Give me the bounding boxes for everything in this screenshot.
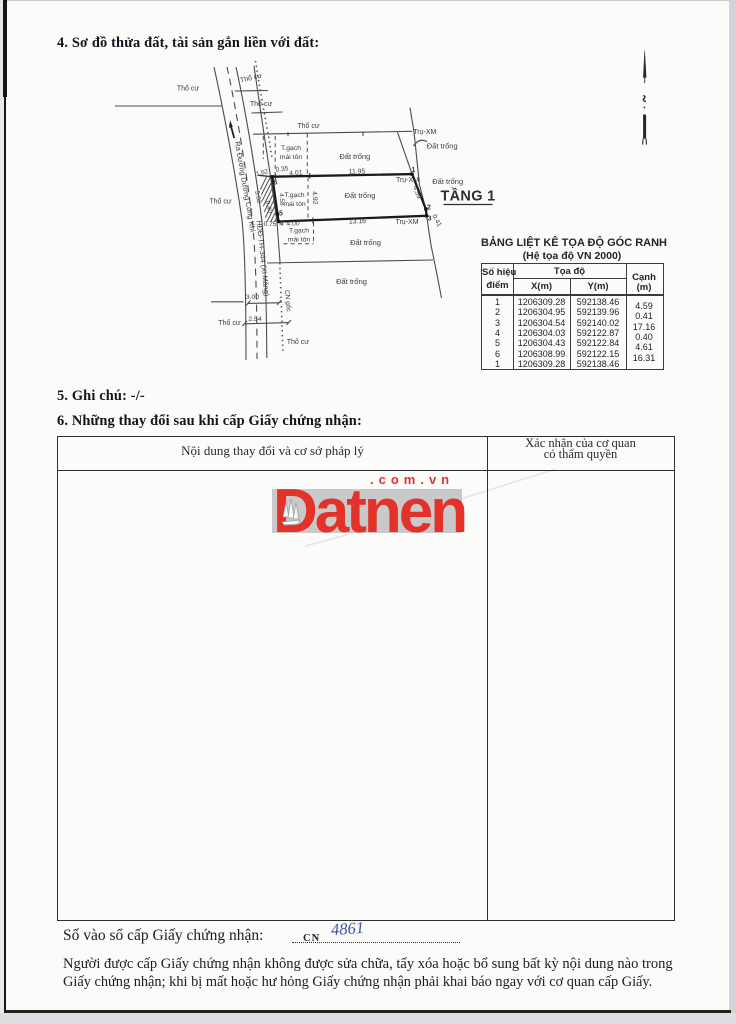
svg-text:T.gạch: T.gạch <box>284 192 304 199</box>
svg-text:0.35: 0.35 <box>275 165 289 174</box>
svg-text:mái tôn: mái tôn <box>283 201 306 208</box>
svg-text:Thổ cư: Thổ cư <box>297 122 320 130</box>
svg-text:5: 5 <box>279 211 283 218</box>
svg-text:2.54: 2.54 <box>248 316 261 323</box>
svg-text:4.00: 4.00 <box>286 221 299 228</box>
svg-text:Thổ cư: Thổ cư <box>287 338 310 346</box>
svg-text:11.95: 11.95 <box>349 168 366 175</box>
svg-text:0.40: 0.40 <box>263 200 273 214</box>
svg-text:4: 4 <box>279 221 283 228</box>
svg-text:Thổ cư: Thổ cư <box>250 100 273 108</box>
svg-text:mái tôn: mái tôn <box>280 154 303 161</box>
svg-text:5.02: 5.02 <box>253 190 262 204</box>
svg-text:0.75: 0.75 <box>264 221 277 228</box>
svg-text:Đất trống: Đất trống <box>345 191 376 200</box>
svg-text:CN gốc: CN gốc <box>283 290 294 313</box>
svg-text:Đất trống: Đất trống <box>350 238 381 247</box>
svg-text:Đất trống: Đất trống <box>336 277 367 286</box>
svg-text:T.gạch: T.gạch <box>289 228 309 235</box>
svg-text:mái tôn: mái tôn <box>288 236 311 243</box>
svg-text:Trụ-XM: Trụ-XM <box>395 219 418 226</box>
svg-text:0.41: 0.41 <box>430 213 442 228</box>
svg-text:TẦNG 1: TẦNG 1 <box>441 188 496 205</box>
svg-text:4.92: 4.92 <box>311 191 319 205</box>
svg-text:6: 6 <box>274 180 278 187</box>
svg-text:T.gạch: T.gạch <box>281 145 301 152</box>
svg-text:Đất trống: Đất trống <box>427 142 458 151</box>
svg-text:Trụ-XM: Trụ-XM <box>413 129 436 136</box>
svg-text:Đất trống: Đất trống <box>432 177 463 186</box>
svg-text:Trụ-XM: Trụ-XM <box>396 177 419 184</box>
svg-text:3.00: 3.00 <box>246 294 259 301</box>
svg-text:Thổ cư: Thổ cư <box>218 319 241 327</box>
svg-text:13.16: 13.16 <box>349 218 366 226</box>
svg-text:Thổ cư: Thổ cư <box>177 85 200 93</box>
svg-text:Đất trống: Đất trống <box>339 152 370 161</box>
svg-text:HĐĐ-TH-344 (Xi Măng): HĐĐ-TH-344 (Xi Măng) <box>255 220 272 297</box>
svg-text:1: 1 <box>412 167 416 174</box>
svg-text:Thổ cư: Thổ cư <box>209 198 232 206</box>
svg-text:Thổ cư: Thổ cư <box>239 71 263 84</box>
svg-text:4.01: 4.01 <box>289 170 303 178</box>
svg-text:4.58: 4.58 <box>278 193 286 206</box>
svg-text:3: 3 <box>428 216 432 223</box>
svg-text:2: 2 <box>427 205 431 212</box>
